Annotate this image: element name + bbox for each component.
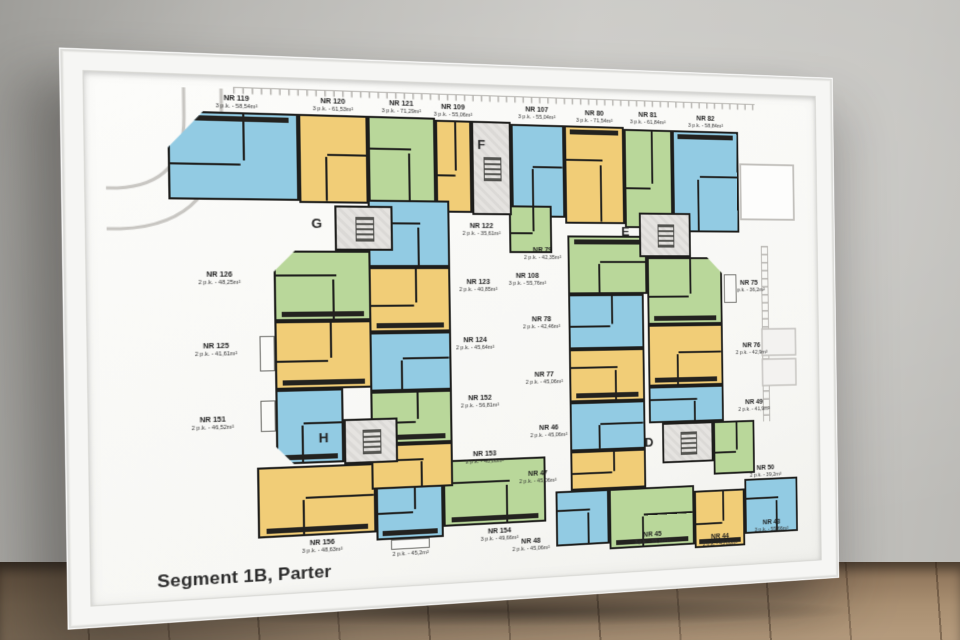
balcony — [260, 400, 276, 432]
stairs-icon — [681, 431, 698, 455]
unit-nr-121 — [367, 116, 436, 209]
unit-nr-126 — [273, 251, 371, 322]
core-letter-h: H — [319, 430, 329, 446]
stairs-icon — [484, 157, 502, 181]
unit-nr-47 — [570, 449, 646, 491]
apartment-label-nr-49: NR 492 p.k. - 41,9m² — [716, 398, 791, 414]
unit-nr-79 — [567, 235, 647, 294]
stair-core-f — [471, 121, 512, 216]
label-unit-info: 2 p.k. - 40,85m² — [436, 287, 519, 294]
stair-core-e — [639, 213, 691, 258]
unit-nr-154 — [443, 456, 546, 526]
annex-top-right — [740, 164, 794, 219]
unit-nr-76 — [648, 324, 724, 387]
apartment-label-nr-77: NR 772 p.k. - 45,06m² — [503, 371, 584, 387]
unit-nr-156 — [257, 463, 376, 539]
balcony — [259, 336, 275, 372]
balcony — [724, 274, 737, 303]
apartment-label-nr-125: NR 1252 p.k. - 41,61m² — [169, 342, 262, 359]
stair-core-g — [334, 205, 393, 250]
apartment-label-nr-82: NR 823 p.k. - 58,84m² — [667, 115, 743, 131]
picture-frame: NR 1193 p.k. - 58,54m²NR 1203 p.k. - 61,… — [59, 48, 839, 630]
unit-nr-123 — [369, 267, 451, 332]
stair-core-h — [344, 417, 398, 464]
core-letter-f: F — [477, 137, 485, 152]
apartment-label-nr-76: NR 762 p.k. - 42,9m² — [714, 342, 789, 357]
label-unit-info: 3 p.k. - 55,76m² — [486, 281, 568, 288]
label-unit-info: 2 p.k. - 36,2m² — [711, 288, 786, 295]
stair-core-d — [662, 421, 714, 463]
apartment-label-nr-119: NR 1193 p.k. - 58,54m² — [190, 94, 282, 112]
stairs-icon — [355, 217, 374, 242]
label-unit-number: NR 79 — [502, 247, 583, 255]
apartment-label-nr-152: NR 1522 p.k. - 56,81m² — [438, 394, 522, 411]
unit-nr-125 — [274, 320, 372, 390]
balcony — [391, 538, 430, 550]
apartment-label-nr-151: NR 1512 p.k. - 46,52m² — [166, 415, 259, 433]
stairs-icon — [363, 429, 382, 454]
annex-right-2 — [762, 359, 796, 386]
unit-nr-120 — [298, 114, 369, 204]
stairs-icon — [658, 224, 675, 247]
unit-nr-49 — [649, 385, 724, 424]
unit-nr-151 — [275, 388, 344, 465]
core-letter-d: D — [645, 435, 654, 450]
apartment-label-nr-75: NR 752 p.k. - 36,2m² — [711, 280, 786, 294]
unit-nr-108 — [509, 205, 552, 253]
unit-nr-107 — [511, 124, 566, 218]
unit-nr-109 — [435, 120, 472, 213]
apartment-label-nr-126: NR 1262 p.k. - 48,25m² — [173, 271, 265, 287]
apartment-label-nr-108: NR 1083 p.k. - 55,76m² — [486, 273, 568, 288]
poster: NR 1193 p.k. - 58,54m²NR 1203 p.k. - 61,… — [82, 70, 821, 607]
unit-nr-80 — [564, 125, 625, 224]
apartment-label-nr-124: NR 1242 p.k. - 45,64m² — [433, 336, 517, 352]
core-letter-g: G — [311, 215, 322, 231]
photo-scene: NR 1193 p.k. - 58,54m²NR 1203 p.k. - 61,… — [0, 0, 960, 640]
label-unit-number: NR 126 — [173, 271, 265, 280]
label-unit-info: 2 p.k. - 48,25m² — [173, 280, 265, 287]
apartment-label-nr-78: NR 782 p.k. - 42,46m² — [501, 316, 583, 332]
label-unit-info: 2 p.k. - 42,46m² — [501, 324, 582, 331]
apartment-label-nr-109: NR 1093 p.k. - 55,06m² — [410, 103, 494, 120]
floor-plan: NR 1193 p.k. - 58,54m²NR 1203 p.k. - 61,… — [104, 83, 799, 592]
label-unit-info: 2 p.k. - 42,35m² — [502, 255, 583, 261]
core-letter-e: E — [621, 224, 629, 239]
apartment-label-nr-79: NR 792 p.k. - 42,35m² — [502, 247, 583, 262]
apartment-label-nr-46: NR 462 p.k. - 45,06m² — [508, 423, 589, 440]
